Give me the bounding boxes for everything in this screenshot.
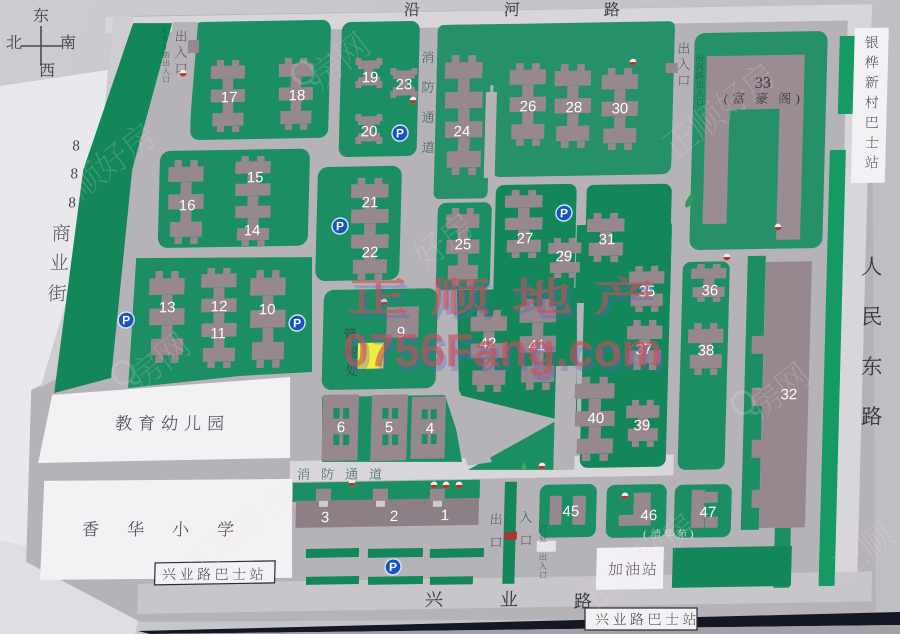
svg-text:P: P bbox=[293, 316, 301, 330]
svg-text:): ) bbox=[796, 91, 800, 105]
svg-text:P: P bbox=[122, 313, 130, 327]
svg-text:24: 24 bbox=[453, 123, 470, 140]
svg-text:47: 47 bbox=[699, 504, 716, 521]
svg-text:10: 10 bbox=[259, 301, 276, 318]
svg-text:8: 8 bbox=[72, 138, 80, 154]
svg-text:15: 15 bbox=[247, 169, 264, 186]
svg-text:3: 3 bbox=[321, 509, 330, 526]
svg-text:P: P bbox=[560, 206, 568, 220]
svg-text:19: 19 bbox=[361, 69, 378, 86]
svg-text:4: 4 bbox=[426, 420, 435, 437]
svg-text:2: 2 bbox=[390, 508, 399, 525]
svg-text:25: 25 bbox=[454, 236, 471, 253]
svg-text:38: 38 bbox=[697, 342, 714, 359]
svg-text:P: P bbox=[389, 560, 397, 574]
svg-text:21: 21 bbox=[361, 194, 378, 211]
svg-text:1: 1 bbox=[441, 507, 450, 524]
svg-text:27: 27 bbox=[516, 230, 533, 247]
svg-text:14: 14 bbox=[243, 222, 260, 239]
svg-text:20: 20 bbox=[360, 123, 377, 140]
svg-text:12: 12 bbox=[211, 298, 228, 315]
svg-text:22: 22 bbox=[361, 244, 378, 261]
svg-text:28: 28 bbox=[565, 99, 582, 116]
svg-text:31: 31 bbox=[598, 231, 615, 248]
svg-text:39: 39 bbox=[633, 417, 650, 434]
svg-text:36: 36 bbox=[701, 282, 718, 299]
svg-text:0756Fang.com: 0756Fang.com bbox=[343, 324, 663, 376]
svg-text:45: 45 bbox=[562, 503, 579, 520]
svg-text:5: 5 bbox=[385, 419, 394, 436]
svg-text:23: 23 bbox=[395, 76, 412, 93]
svg-text:30: 30 bbox=[611, 100, 628, 117]
svg-text:40: 40 bbox=[587, 410, 604, 427]
svg-text:16: 16 bbox=[179, 197, 196, 214]
svg-text:P: P bbox=[336, 219, 344, 233]
svg-text:46: 46 bbox=[640, 507, 657, 524]
svg-text:11: 11 bbox=[210, 325, 226, 342]
svg-text:6: 6 bbox=[337, 419, 346, 436]
svg-text:29: 29 bbox=[555, 248, 572, 265]
svg-text:26: 26 bbox=[519, 98, 536, 115]
svg-text:13: 13 bbox=[159, 299, 176, 316]
svg-text:P: P bbox=[396, 126, 404, 140]
svg-text:17: 17 bbox=[221, 89, 238, 106]
